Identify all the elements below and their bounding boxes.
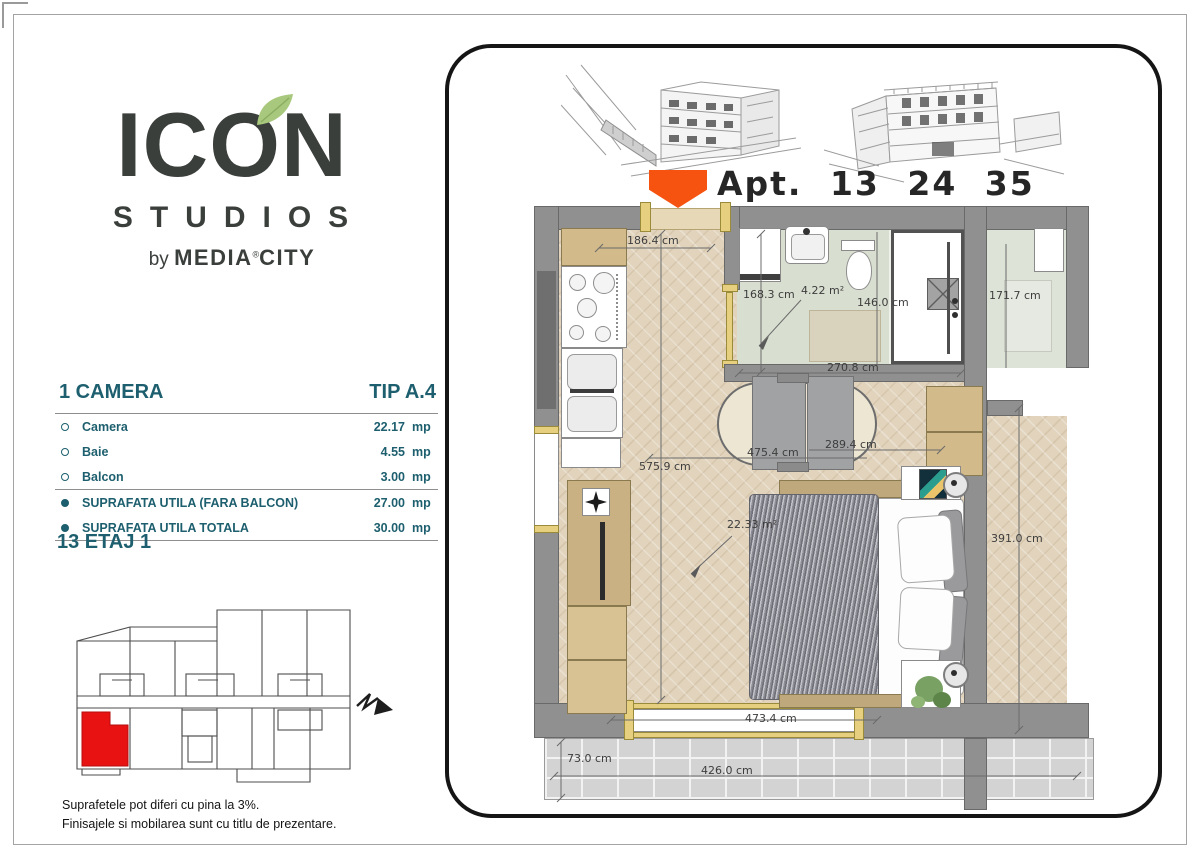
row-label: Camera — [82, 420, 359, 434]
cabinet-divider — [568, 659, 626, 661]
dim-bath-area: 4.22 m² — [801, 284, 844, 297]
logo-byline: by MEDIA®CITY — [88, 245, 376, 271]
adjacent-floor — [987, 416, 1067, 736]
logo-text: IC — [116, 95, 209, 196]
row-unit: mp — [412, 470, 436, 484]
plant — [933, 692, 951, 708]
dim-right-height: 391.0 cm — [991, 532, 1043, 545]
leaf-icon — [255, 93, 295, 127]
adjacent-fixture — [1034, 228, 1064, 272]
washer-panel — [740, 274, 780, 280]
brochure-page: ICON STUDIOS by MEDIA®CITY 1 CAMERA TIP … — [0, 0, 1200, 859]
table-row: Camera 22.17 mp — [55, 414, 438, 439]
dim-sofa-width: 289.4 cm — [825, 438, 877, 451]
open-bullet-icon — [61, 423, 69, 431]
brand-logo: ICON STUDIOS by MEDIA®CITY — [88, 103, 376, 271]
sofa-cushion — [807, 376, 854, 470]
stove-burner — [569, 274, 586, 291]
sink-basin — [567, 354, 617, 390]
row-value: 3.00 — [359, 470, 405, 484]
door-frame — [722, 284, 738, 292]
speaker — [943, 662, 969, 688]
dim-adjacent-height: 171.7 cm — [989, 289, 1041, 302]
row-unit: mp — [412, 445, 436, 459]
kitchen-cabinet — [561, 228, 627, 266]
entry-door-post — [640, 202, 651, 232]
byline-brand-b: CITY — [259, 245, 315, 270]
entry-threshold — [644, 208, 729, 230]
shower-door-bar — [947, 242, 950, 354]
open-bullet-icon — [61, 448, 69, 456]
window-frame — [534, 525, 559, 533]
row-label: Baie — [82, 445, 359, 459]
logo-studios: STUDIOS — [88, 201, 376, 235]
wardrobe-divider — [927, 431, 982, 433]
apartment-numbers: Apt. 13 24 35 — [717, 164, 1035, 203]
sink-basin — [567, 396, 617, 432]
unit-pointer-icon — [649, 170, 707, 208]
dim-room-width: 475.4 cm — [747, 446, 799, 459]
stove-burner — [593, 272, 615, 294]
stove-burner — [577, 298, 597, 318]
balcony-floor — [544, 738, 1094, 800]
dim-balcony-depth: 73.0 cm — [567, 752, 612, 765]
row-value: 30.00 — [359, 521, 405, 535]
pillow — [897, 514, 955, 584]
type-title: TIP A.4 — [369, 381, 436, 404]
corner-mark — [2, 2, 28, 28]
row-unit: mp — [412, 420, 436, 434]
row-unit: mp — [412, 496, 436, 510]
row-unit: mp — [412, 521, 436, 535]
filled-bullet-icon — [61, 499, 69, 507]
unit-spec-table: 1 CAMERA TIP A.4 Camera 22.17 mp Baie 4.… — [55, 381, 438, 541]
row-label: SUPRAFATA UTILA (FARA BALCON) — [82, 496, 359, 510]
bottom-window — [629, 709, 859, 732]
table-row: Baie 4.55 mp — [55, 439, 438, 464]
highlighted-unit — [82, 712, 128, 766]
dim-bath-height: 168.3 cm — [743, 288, 795, 301]
shower-head-cross — [928, 279, 958, 309]
plant — [911, 696, 925, 708]
bathroom-door — [726, 292, 733, 362]
north-arrow-icon — [357, 694, 393, 715]
kitchen-cabinet-low — [561, 438, 621, 468]
dim-shower-width: 146.0 cm — [857, 296, 909, 309]
sink-faucet — [803, 228, 810, 235]
row-value: 27.00 — [359, 496, 405, 510]
dim-balcony-width: 426.0 cm — [701, 764, 753, 777]
floor-label: 13 ETAJ 1 — [57, 531, 151, 554]
disclaimer: Suprafetele pot diferi cu pina la 3%. Fi… — [62, 796, 336, 835]
byline-by: by — [149, 249, 169, 270]
pillow — [897, 587, 954, 652]
row-value: 22.17 — [359, 420, 405, 434]
window-frame — [627, 732, 861, 738]
star-icon — [585, 491, 607, 513]
left-window — [534, 433, 559, 526]
building-location-map — [52, 594, 397, 794]
dim-bath-width: 270.8 cm — [827, 361, 879, 374]
floorplan-panel: Apt. 13 24 35 — [445, 44, 1162, 818]
dim-room-height: 575.9 cm — [639, 460, 691, 473]
entry-door-post — [720, 202, 731, 232]
dim-window-width: 473.4 cm — [745, 712, 797, 725]
shower-knob — [952, 298, 958, 304]
open-bullet-icon — [61, 473, 69, 481]
window-frame — [534, 426, 559, 434]
sink-bowl — [791, 234, 825, 260]
stove-knobs — [616, 274, 624, 340]
rooms-title: 1 CAMERA — [59, 381, 163, 404]
shower-head — [927, 278, 959, 310]
byline-brand-a: MEDIA — [174, 245, 252, 270]
logo-wordmark: ICON — [88, 103, 376, 189]
sofa-arm — [777, 462, 809, 472]
wall — [727, 206, 1089, 230]
wall-shaft — [537, 271, 556, 409]
bath-mat — [809, 310, 881, 362]
speaker — [943, 472, 969, 498]
toilet-tank — [841, 240, 875, 251]
wall-stub — [987, 400, 1023, 416]
stove-burner — [569, 325, 584, 340]
row-label: Balcon — [82, 470, 359, 484]
stove-burner — [595, 326, 611, 342]
dim-entry-width: 186.4 cm — [627, 234, 679, 247]
disclaimer-line: Finisajele si mobilarea sunt cu titlu de… — [62, 815, 336, 834]
table-row: Balcon 3.00 mp — [55, 464, 438, 489]
wall — [964, 738, 987, 810]
faucet — [570, 389, 614, 393]
spec-header: 1 CAMERA TIP A.4 — [55, 381, 438, 413]
sofa-arm — [777, 373, 809, 383]
tv-screen — [600, 522, 605, 600]
row-value: 4.55 — [359, 445, 405, 459]
dim-bedroom-area: 22.33 m² — [727, 518, 777, 531]
shower-knob — [952, 312, 958, 318]
table-row: SUPRAFATA UTILA (FARA BALCON) 27.00 mp — [55, 490, 438, 515]
toilet-bowl — [846, 251, 872, 290]
wall — [1066, 206, 1089, 368]
disclaimer-line: Suprafetele pot diferi cu pina la 3%. — [62, 796, 336, 815]
